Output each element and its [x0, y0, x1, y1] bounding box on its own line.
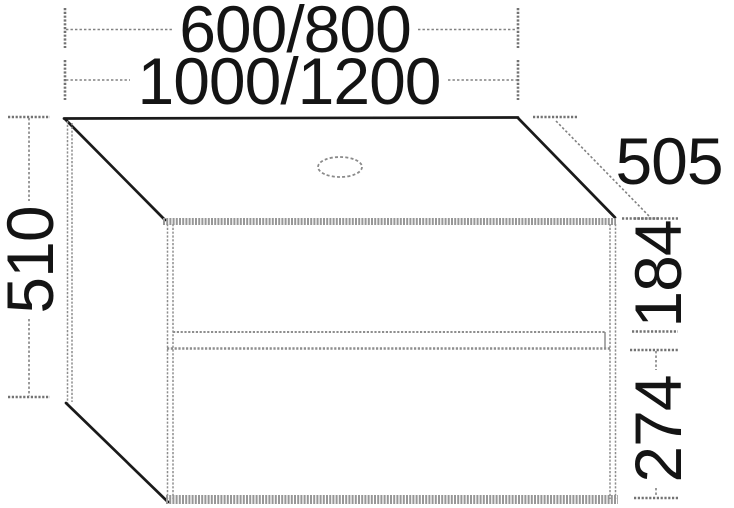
countertop-back-edge — [64, 118, 518, 119]
dimension-lower-drawer: 274 — [621, 350, 695, 498]
dim-label-upper-drawer: 184 — [621, 220, 695, 327]
dim-label-lower-drawer: 274 — [621, 375, 695, 482]
technical-drawing-canvas: 600/800 1000/1200 510 505 184 274 — [0, 0, 734, 508]
dimension-width-bottom: 1000/1200 — [65, 44, 518, 118]
dim-label-depth: 505 — [615, 124, 722, 198]
vanity-unit-dimension-drawing: 600/800 1000/1200 510 505 184 274 — [0, 0, 734, 508]
dimension-height: 510 — [0, 117, 67, 397]
dim-label-width-bottom: 1000/1200 — [138, 44, 441, 118]
side-panel-bottom-edge — [66, 403, 168, 502]
dim-label-height: 510 — [0, 206, 67, 313]
vanity-cabinet — [64, 118, 618, 503]
dimension-upper-drawer: 184 — [621, 219, 695, 332]
